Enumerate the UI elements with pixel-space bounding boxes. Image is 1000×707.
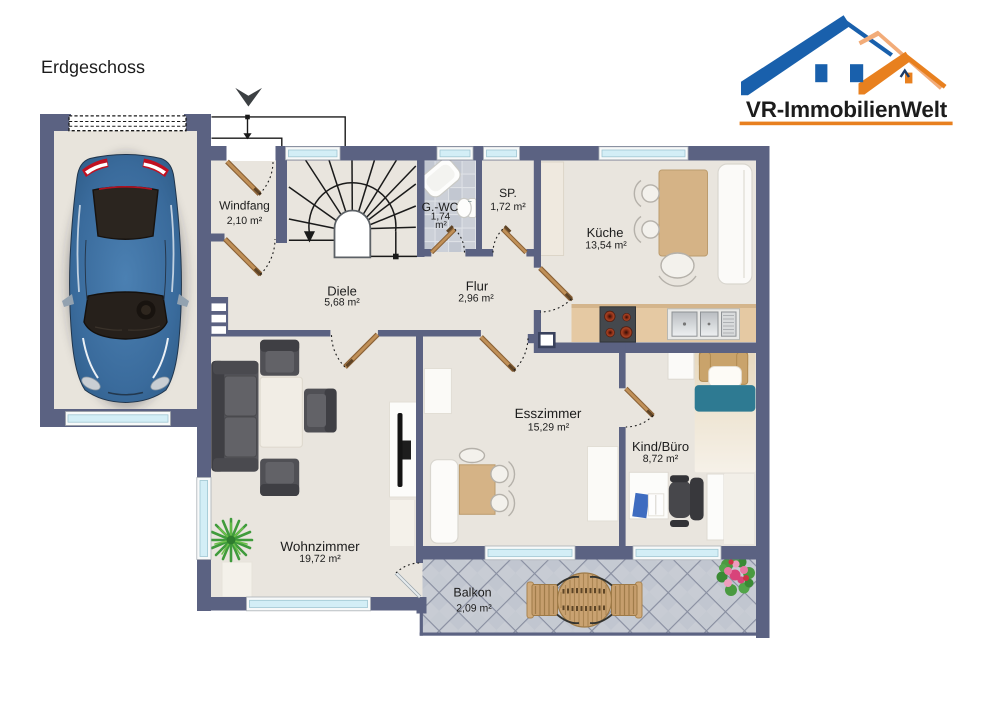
svg-text:Esszimmer: Esszimmer [515, 406, 582, 421]
svg-text:m²: m² [435, 220, 447, 231]
svg-text:5,68 m²: 5,68 m² [324, 297, 360, 309]
svg-text:1,72 m²: 1,72 m² [490, 201, 526, 213]
svg-text:2,09 m²: 2,09 m² [456, 603, 492, 615]
svg-text:Flur: Flur [466, 279, 489, 294]
svg-text:8,72 m²: 8,72 m² [643, 453, 679, 465]
svg-text:13,54 m²: 13,54 m² [585, 240, 627, 252]
svg-text:2,10 m²: 2,10 m² [227, 215, 263, 227]
svg-text:SP.: SP. [499, 186, 517, 200]
svg-text:19,72 m²: 19,72 m² [299, 553, 341, 565]
svg-text:2,96 m²: 2,96 m² [458, 293, 494, 305]
svg-text:Kind/Büro: Kind/Büro [632, 439, 689, 454]
svg-text:Wohnzimmer: Wohnzimmer [280, 539, 360, 554]
svg-text:15,29 m²: 15,29 m² [528, 422, 570, 434]
svg-text:Balkon: Balkon [453, 586, 491, 600]
svg-text:Windfang: Windfang [219, 199, 270, 213]
svg-text:Erdgeschoss: Erdgeschoss [41, 57, 145, 77]
svg-text:Küche: Küche [587, 225, 624, 240]
svg-text:VR-ImmobilienWelt: VR-ImmobilienWelt [746, 97, 948, 122]
